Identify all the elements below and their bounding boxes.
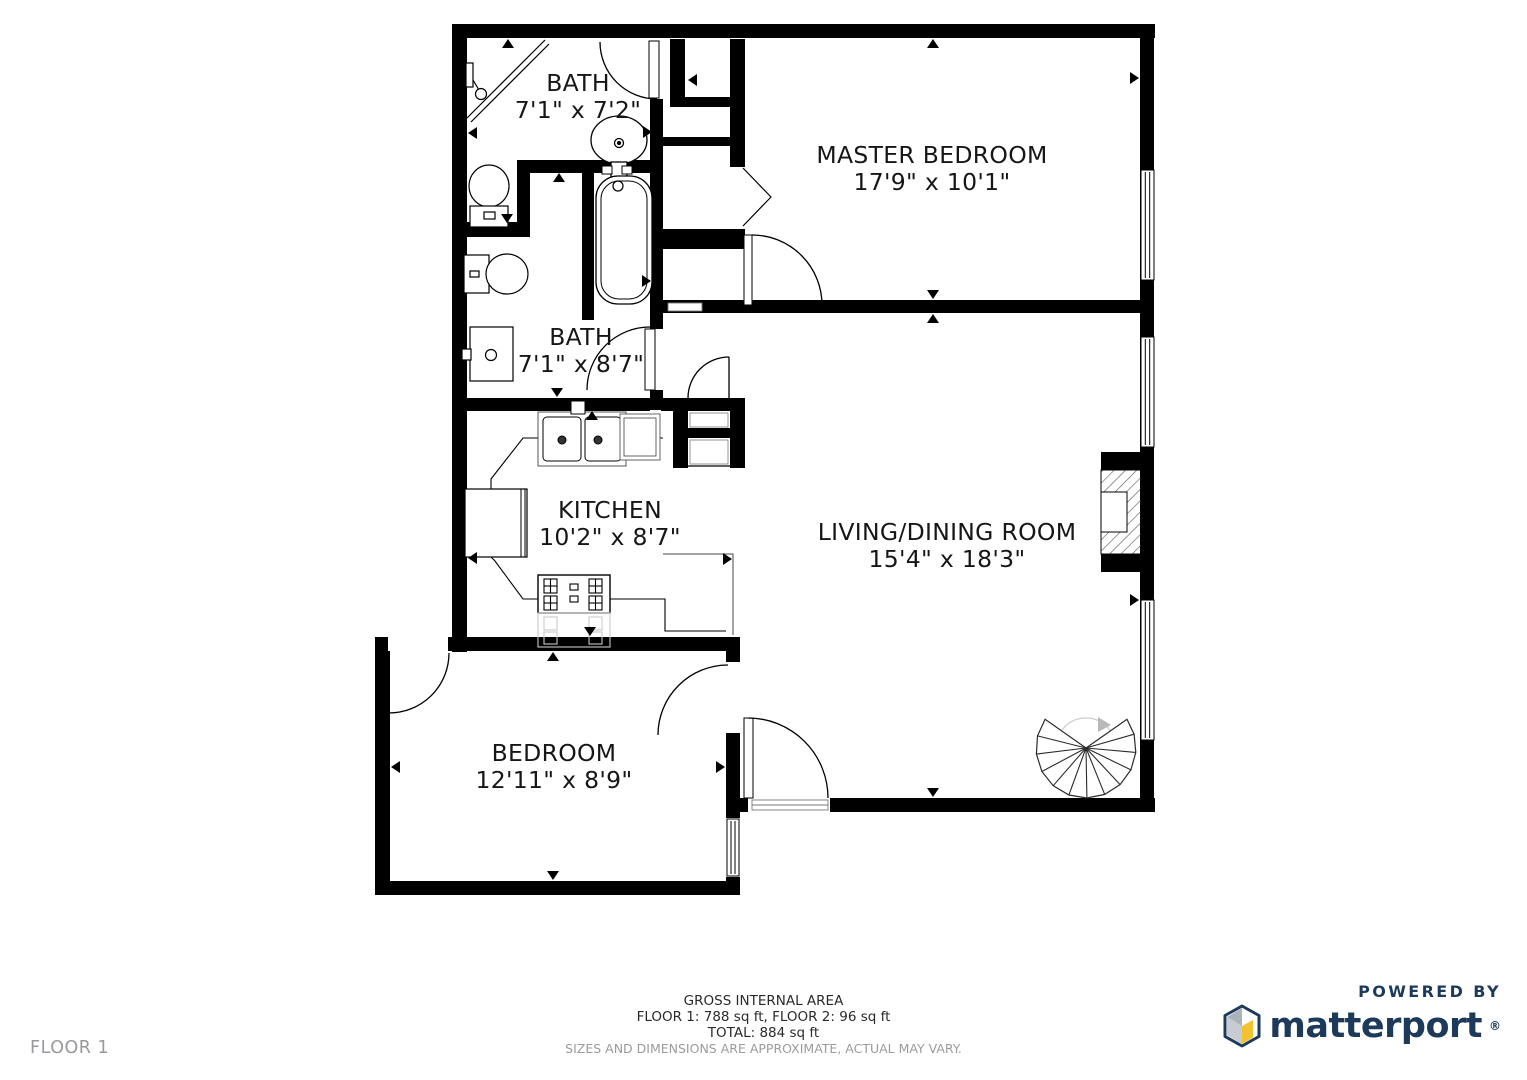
spiral-staircase-icon <box>1036 717 1135 798</box>
room-dims: 10'2" x 8'7" <box>539 524 681 551</box>
matterport-cube-icon <box>1222 1004 1262 1048</box>
toilet-icon <box>469 165 509 227</box>
living-room-window-lower-icon <box>1141 600 1154 740</box>
utility-closet-shelves <box>690 413 728 464</box>
room-name: BATH <box>515 70 642 97</box>
fireplace <box>1101 452 1141 572</box>
living-room-entry-door-icon <box>744 718 828 798</box>
toilet-icon <box>464 254 528 294</box>
bifold-closet-door-icon <box>743 168 771 226</box>
floor-plan-drawing <box>0 0 1527 1080</box>
room-dims: 17'9" x 10'1" <box>816 169 1047 196</box>
room-name: KITCHEN <box>539 497 681 524</box>
bedroom-door-right-icon <box>658 665 728 735</box>
refrigerator-icon <box>465 489 527 557</box>
bedroom-doorway-gap <box>388 637 448 651</box>
floor-plan-page: BATH 7'1" x 7'2" MASTER BEDROOM 17'9" x … <box>0 0 1527 1080</box>
dishwasher-icon <box>620 414 660 460</box>
room-dims: 15'4" x 18'3" <box>818 546 1077 573</box>
room-name: LIVING/DINING ROOM <box>818 519 1077 546</box>
open-plan-boundary <box>663 554 733 635</box>
bedroom-window-icon <box>727 819 739 876</box>
hall-door-icon <box>688 357 729 398</box>
room-label-master-bedroom: MASTER BEDROOM 17'9" x 10'1" <box>816 142 1047 196</box>
stove-icon <box>538 575 610 613</box>
matterport-branding: POWERED BY matterport® <box>1222 982 1501 1048</box>
firebox-icon <box>1101 492 1127 532</box>
room-dims: 12'11" x 8'9" <box>476 767 633 794</box>
room-name: BEDROOM <box>476 740 633 767</box>
vanity-sink-icon <box>462 327 513 381</box>
registered-mark: ® <box>1489 1019 1501 1033</box>
bedroom-door-left-icon <box>389 653 449 713</box>
room-label-bath-1: BATH 7'1" x 7'2" <box>515 70 642 124</box>
room-label-living-dining: LIVING/DINING ROOM 15'4" x 18'3" <box>818 519 1077 573</box>
room-label-bedroom: BEDROOM 12'11" x 8'9" <box>476 740 633 794</box>
brand-name-text: matterport <box>1269 1007 1482 1045</box>
master-bedroom-door-icon <box>744 235 822 305</box>
floor-label: FLOOR 1 <box>30 1038 109 1058</box>
room-name: BATH <box>518 324 645 351</box>
room-dims: 7'1" x 8'7" <box>518 351 645 378</box>
room-dims: 7'1" x 7'2" <box>515 97 642 124</box>
master-bedroom-window-icon <box>1141 170 1154 280</box>
room-label-kitchen: KITCHEN 10'2" x 8'7" <box>539 497 681 551</box>
room-label-bath-2: BATH 7'1" x 8'7" <box>518 324 645 378</box>
living-room-window-upper-icon <box>1141 337 1154 447</box>
powered-by-text: POWERED BY <box>1222 982 1501 1001</box>
room-name: MASTER BEDROOM <box>816 142 1047 169</box>
